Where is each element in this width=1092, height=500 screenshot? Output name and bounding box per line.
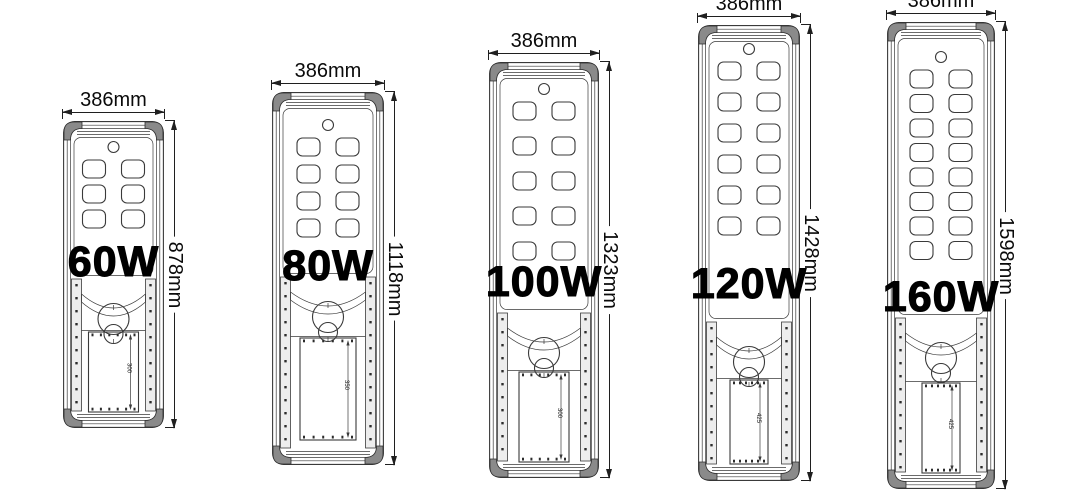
wattage-label: 80W <box>238 245 417 288</box>
width-dim-label: 386mm <box>295 61 362 81</box>
dim-arrow-right-icon <box>791 13 801 19</box>
width-dim-label: 386mm <box>80 90 147 110</box>
width-dim-label: 386mm <box>511 31 578 51</box>
height-dimension: 1598mm <box>1005 22 1006 489</box>
dim-arrow-up-icon <box>807 24 813 34</box>
dim-arrow-left-icon <box>697 13 707 19</box>
wattage-label: 120W <box>667 263 830 306</box>
lamp-drawing-160w <box>887 22 995 489</box>
height-dimension: 1428mm <box>810 25 811 481</box>
dim-arrow-down-icon <box>606 469 612 479</box>
lamp-80w: 386mm 1118mm 80W 350 <box>272 92 384 465</box>
dim-arrow-right-icon <box>590 50 600 56</box>
dim-arrow-left-icon <box>488 50 498 56</box>
width-dimension: 386mm <box>272 83 384 84</box>
dim-arrow-right-icon <box>986 10 996 16</box>
width-dimension: 386mm <box>489 53 599 54</box>
lamp-60w: 386mm 878mm 60W 300 <box>63 121 164 428</box>
lamp-100w: 386mm 1323mm 100W 300 <box>489 62 599 478</box>
diagram-canvas: 386mm 878mm 60W 300 386mm 1118mm 80W <box>0 0 1092 500</box>
battery-dim-label: 425 <box>755 413 761 423</box>
dim-arrow-down-icon <box>807 472 813 482</box>
dim-arrow-up-icon <box>171 120 177 130</box>
width-dim-label: 386mm <box>908 0 975 11</box>
battery-dim-label: 350 <box>343 380 349 390</box>
dim-arrow-right-icon <box>155 109 165 115</box>
width-dimension: 386mm <box>887 13 995 14</box>
wattage-label: 60W <box>33 241 195 284</box>
battery-dim-label: 425 <box>947 419 953 429</box>
dim-arrow-left-icon <box>271 80 281 86</box>
dim-arrow-down-icon <box>1002 480 1008 490</box>
dim-arrow-down-icon <box>171 419 177 429</box>
dim-arrow-left-icon <box>62 109 72 115</box>
wattage-label: 160W <box>855 276 1028 319</box>
lamp-160w: 386mm 1598mm 160W 425 <box>887 22 995 489</box>
lamp-120w: 386mm 1428mm 120W 425 <box>698 25 800 481</box>
dim-arrow-left-icon <box>886 10 896 16</box>
dim-arrow-up-icon <box>391 91 397 101</box>
dim-arrow-right-icon <box>375 80 385 86</box>
lamp-drawing-120w <box>698 25 800 481</box>
width-dimension: 386mm <box>63 112 164 113</box>
dim-arrow-down-icon <box>391 456 397 466</box>
dim-arrow-up-icon <box>606 61 612 71</box>
battery-dim-label: 300 <box>126 363 132 373</box>
wattage-label: 100W <box>456 261 632 304</box>
dim-arrow-up-icon <box>1002 21 1008 31</box>
width-dimension: 386mm <box>698 16 800 17</box>
width-dim-label: 386mm <box>716 0 783 14</box>
battery-dim-label: 300 <box>556 408 562 418</box>
